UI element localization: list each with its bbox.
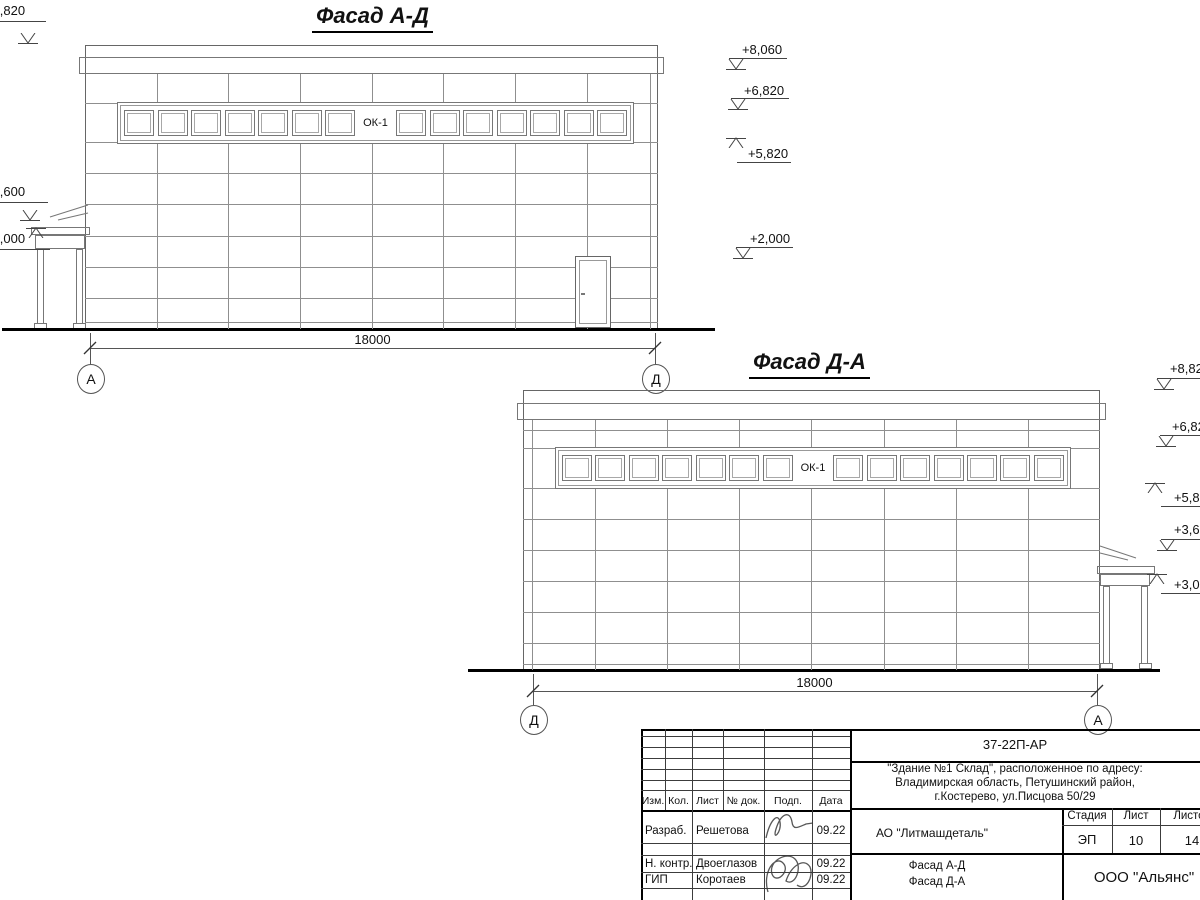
window [292,110,322,136]
window [562,455,592,481]
elevation-mark-label: +3,600 [0,184,29,199]
elevation-level-tick [20,220,40,221]
door-handle-icon [581,293,585,295]
window [595,455,625,481]
window [124,110,154,136]
project-address-line1: "Здание №1 Склад", расположенное по адре… [855,763,1175,775]
facade-da-porch-post-right [1141,586,1148,664]
checker-name: Двоеглазов [696,858,757,870]
facade-ad-porch-roof [35,235,85,249]
elevation-level-tick [733,258,753,259]
window [430,110,460,136]
window [396,110,426,136]
axis-bubble-a: А [77,364,105,394]
title-block-rule [641,747,850,748]
elevation-shelf-line [1161,593,1200,594]
role-checker: Н. контр. [645,858,692,870]
elevation-shelf-line [0,202,48,203]
window [191,110,221,136]
elevation-shelf-line [1161,539,1200,540]
elevation-shelf-line [1160,435,1200,436]
title-block-border [850,729,852,900]
signature-icon [766,815,813,892]
organization-name: АО "Литмашдеталь" [852,826,1012,840]
elevation-level-tick [1147,574,1167,575]
title-block-border [641,810,850,812]
rev-header-podp: Подп. [764,795,812,807]
company-name: ООО "Альянс" [1064,869,1200,886]
facade-da-porch-roof [1100,574,1150,586]
title-block-rule [692,729,693,900]
elevation-level-tick [726,138,746,139]
window [662,455,692,481]
extension-line [533,674,534,705]
developer-name: Решетова [696,825,749,837]
title-block-rule [641,855,850,856]
stage-label: Стадия [1063,810,1111,822]
elevation-mark-label: +6,820 [1168,419,1200,434]
extension-line [1097,674,1098,705]
window [629,455,659,481]
elevation-mark-label: +3,000 [0,231,29,246]
elevation-level-tick [26,228,46,229]
elevation-shelf-line [736,247,793,248]
facade-da-ground-line [468,669,1160,672]
title-block-rule [764,729,765,900]
dimension-value: 18000 [772,675,857,690]
elevation-level-tick [728,109,748,110]
elevation-mark-label: +3,600 [1170,522,1200,537]
rev-header-data: Дата [812,795,850,807]
facade-ad-title: Фасад А-Д [290,3,455,33]
title-block-rule [1062,825,1200,826]
window [463,110,493,136]
title-block-border [850,853,1200,855]
gip-name: Коротаев [696,874,746,886]
dimension-line [90,348,655,349]
elevation-shelf-line [1161,506,1200,507]
window [530,110,560,136]
facade-ad-door [575,256,611,328]
title-block-rule [641,736,850,737]
elevation-level-tick [726,69,746,70]
sheet-title-line2: Фасад Д-А [852,876,1022,888]
facade-da-panel-joint [532,420,533,670]
rev-header-ndok: № док. [723,795,764,807]
window [564,110,594,136]
facade-da-fascia-band [517,403,1106,420]
title-block-rule [641,780,850,781]
axis-bubble-d2: Д [520,705,548,735]
elevation-mark-label: +5,820 [742,146,794,161]
sheets-label: Листов [1161,810,1200,822]
facade-ad-porch-post-left [37,249,44,324]
drawing-sheet: Фасад А-Д 18000 А Д Фасад Д-А 18000 Д А … [0,0,1200,900]
elevation-level-tick [1145,483,1165,484]
title-block-rule [641,790,850,791]
window [967,455,997,481]
title-block-border [641,729,643,900]
project-address-line2: Владимирская область, Петушинский район, [855,777,1175,789]
facade-da-porch-post-left [1103,586,1110,664]
facade-da-porch-cap [1097,566,1155,574]
elevation-mark-label: +2,000 [744,231,796,246]
window [597,110,627,136]
window-type-label: ОК-1 [796,462,830,474]
facade-ad-panel-joint [650,74,651,329]
facade-ad-window-band: ОК-1 [117,102,634,144]
title-block-rule [641,758,850,759]
sheet-title-line1: Фасад А-Д [852,860,1022,872]
window [497,110,527,136]
elevation-mark-label: +5,820 [1170,490,1200,505]
facade-ad-door-leaf [579,260,607,324]
role-gip: ГИП [645,874,668,886]
facade-ad-ground-line [2,328,715,331]
sheet-number: 10 [1113,833,1159,848]
elevation-level-tick [1157,550,1177,551]
facade-da-window-band: ОК-1 [555,447,1071,489]
elevation-shelf-line [729,58,787,59]
developer-date: 09.22 [812,825,850,837]
window [763,455,793,481]
sheets-total: 14 [1161,833,1200,848]
window [325,110,355,136]
window [696,455,726,481]
rev-header-list: Лист [692,795,723,807]
checker-date: 09.22 [812,858,850,870]
stage-value: ЭП [1063,832,1111,847]
elevation-mark-label: +6,820 [738,83,790,98]
project-address-line3: г.Костерево, ул.Писцова 50/29 [855,791,1175,803]
title-block-rule [641,872,850,873]
title-block-rule [641,843,850,844]
document-number: 37-22П-АР [850,737,1180,752]
window [225,110,255,136]
title-block-border [641,729,1200,731]
facade-ad-fascia-band [79,57,664,74]
facade-ad-windows: ОК-1 [120,105,631,141]
window [258,110,288,136]
elevation-mark-label: +8,820 [1166,361,1200,376]
dimension-value: 18000 [330,332,415,347]
window [833,455,863,481]
gip-date: 09.22 [812,874,850,886]
window [158,110,188,136]
elevation-shelf-line [1157,378,1200,379]
elevation-shelf-line [737,162,791,163]
window [729,455,759,481]
window [900,455,930,481]
elevation-shelf-line [731,98,789,99]
window [934,455,964,481]
rev-header-izm: Изм. [641,795,665,807]
elevation-mark-label: +3,000 [1170,577,1200,592]
title-block-rule [641,888,850,889]
window [1000,455,1030,481]
rev-header-kol: Кол. [665,795,692,807]
window [867,455,897,481]
window [1034,455,1064,481]
facade-da-windows: ОК-1 [558,450,1068,486]
facade-ad-porch-post-right [76,249,83,324]
elevation-level-tick [18,43,38,44]
title-block-rule [641,769,850,770]
dimension-line [533,691,1097,692]
elevation-shelf-line [0,249,50,250]
elevation-mark-label: +8,820 [0,3,29,18]
role-developer: Разраб. [645,825,686,837]
elevation-mark-label: +8,060 [736,42,788,57]
sheet-label: Лист [1113,810,1159,822]
elevation-level-tick [1156,446,1176,447]
window-type-label: ОК-1 [359,117,393,129]
extension-line [655,333,656,364]
elevation-level-tick [1154,389,1174,390]
facade-da-title: Фасад Д-А [727,349,892,379]
elevation-shelf-line [0,21,46,22]
